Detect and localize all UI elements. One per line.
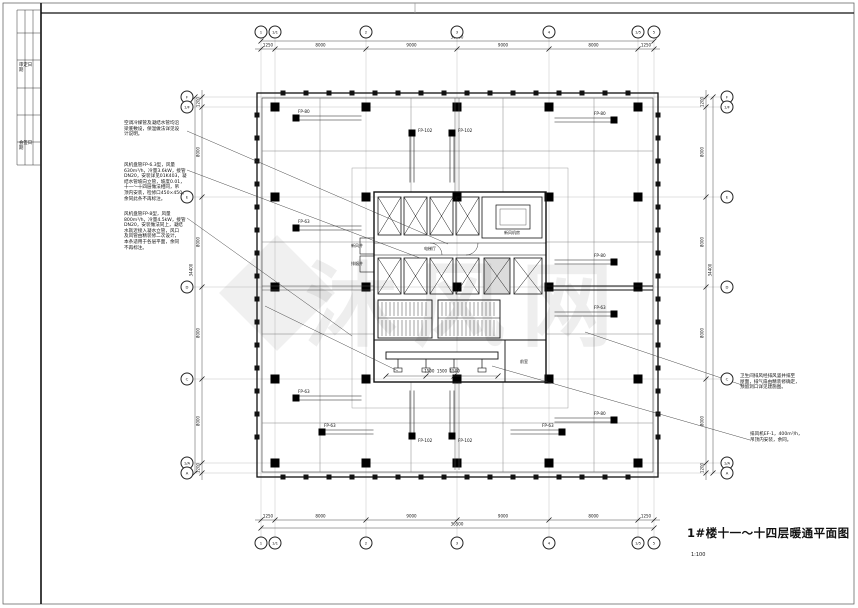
mullion — [419, 91, 424, 96]
mullion — [255, 251, 260, 256]
mullion — [656, 205, 661, 210]
fan-coil-unit — [293, 395, 300, 402]
column — [362, 103, 371, 112]
riser-shaft — [360, 238, 374, 254]
leader-line — [187, 218, 352, 336]
fan-coil-unit — [449, 130, 456, 137]
mullion — [396, 91, 401, 96]
fan-coil-unit — [293, 225, 300, 232]
mullion — [656, 389, 661, 394]
mullion — [656, 251, 661, 256]
mullion — [255, 274, 260, 279]
column — [362, 193, 371, 202]
mullion — [656, 297, 661, 302]
diffuser — [450, 368, 458, 372]
column — [271, 375, 280, 384]
fan-coil-unit — [293, 115, 300, 122]
mullion — [255, 343, 260, 348]
fan-coil-unit — [611, 117, 618, 124]
column — [271, 103, 280, 112]
mullion — [304, 91, 309, 96]
fan-coil-unit — [559, 429, 566, 436]
leader-line — [492, 366, 750, 440]
column — [453, 103, 462, 112]
fan-coil-unit — [409, 130, 416, 137]
mullion — [255, 182, 260, 187]
mullion — [656, 113, 661, 118]
mullion — [255, 389, 260, 394]
mullion — [255, 136, 260, 141]
mullion — [488, 91, 493, 96]
drawing-title-block: 1#楼十一～十四层暖通平面图1:100 — [687, 522, 858, 560]
column — [545, 103, 554, 112]
mullion — [656, 182, 661, 187]
mullion — [350, 475, 355, 480]
mullion — [419, 475, 424, 480]
mullion — [281, 91, 286, 96]
mullion — [442, 91, 447, 96]
floor-plan-canvas — [0, 0, 858, 608]
door-swing — [466, 243, 478, 255]
ahu-unit-inner — [500, 209, 526, 225]
column — [545, 459, 554, 468]
fresh-air-room — [482, 197, 542, 238]
drawing-scale: 1:100 — [691, 552, 705, 558]
fan-coil-unit — [611, 311, 618, 318]
mullion — [373, 91, 378, 96]
column — [362, 459, 371, 468]
mullion — [656, 136, 661, 141]
diffuser — [422, 368, 430, 372]
mullion — [656, 435, 661, 440]
mullion — [626, 475, 631, 480]
door-swing — [430, 243, 442, 255]
supply-duct — [386, 352, 498, 359]
mullion — [534, 475, 539, 480]
fan-coil-unit — [409, 433, 416, 440]
mullion — [488, 475, 493, 480]
mullion — [656, 274, 661, 279]
leader-line — [187, 170, 420, 258]
mullion — [465, 91, 470, 96]
column — [634, 459, 643, 468]
mullion — [255, 366, 260, 371]
ahu-unit — [496, 205, 530, 229]
diffuser — [394, 368, 402, 372]
column — [453, 283, 462, 292]
column — [271, 193, 280, 202]
mullion — [255, 228, 260, 233]
mullion — [373, 475, 378, 480]
column — [362, 375, 371, 384]
mullion — [255, 159, 260, 164]
mullion — [281, 475, 286, 480]
mullion — [396, 475, 401, 480]
mullion — [255, 113, 260, 118]
mullion — [511, 475, 516, 480]
fan-coil-unit — [611, 259, 618, 266]
fan-coil-unit — [449, 433, 456, 440]
mullion — [511, 91, 516, 96]
mullion — [534, 91, 539, 96]
mullion — [442, 475, 447, 480]
mullion — [465, 475, 470, 480]
drawing-title: 1#楼十一～十四层暖通平面图 — [687, 526, 850, 540]
mullion — [656, 320, 661, 325]
mullion — [255, 297, 260, 302]
column — [453, 459, 462, 468]
mullion — [603, 91, 608, 96]
mullion — [580, 475, 585, 480]
mullion — [580, 91, 585, 96]
stair — [438, 300, 500, 338]
mullion — [350, 91, 355, 96]
mullion — [656, 343, 661, 348]
fan-coil-unit — [319, 429, 326, 436]
leader-line — [187, 131, 448, 244]
column — [634, 193, 643, 202]
mullion — [327, 91, 332, 96]
leader-line — [585, 332, 742, 385]
mullion — [656, 366, 661, 371]
mullion — [255, 435, 260, 440]
mullion — [255, 412, 260, 417]
mullion — [557, 91, 562, 96]
mullion — [255, 320, 260, 325]
mullion — [304, 475, 309, 480]
mullion — [255, 205, 260, 210]
mullion — [656, 228, 661, 233]
column — [634, 375, 643, 384]
diffuser — [478, 368, 486, 372]
mullion — [557, 475, 562, 480]
drawing-sheet: 空调冷媒管及凝结水管均沿 梁底敷设，保温做法详见设 计说明。 风机盘管FP-6.… — [0, 0, 858, 608]
mullion — [656, 159, 661, 164]
riser-shaft — [360, 256, 374, 272]
mullion — [327, 475, 332, 480]
mullion — [626, 91, 631, 96]
mullion — [603, 475, 608, 480]
column — [634, 103, 643, 112]
fan-coil-unit — [611, 417, 618, 424]
column — [271, 459, 280, 468]
